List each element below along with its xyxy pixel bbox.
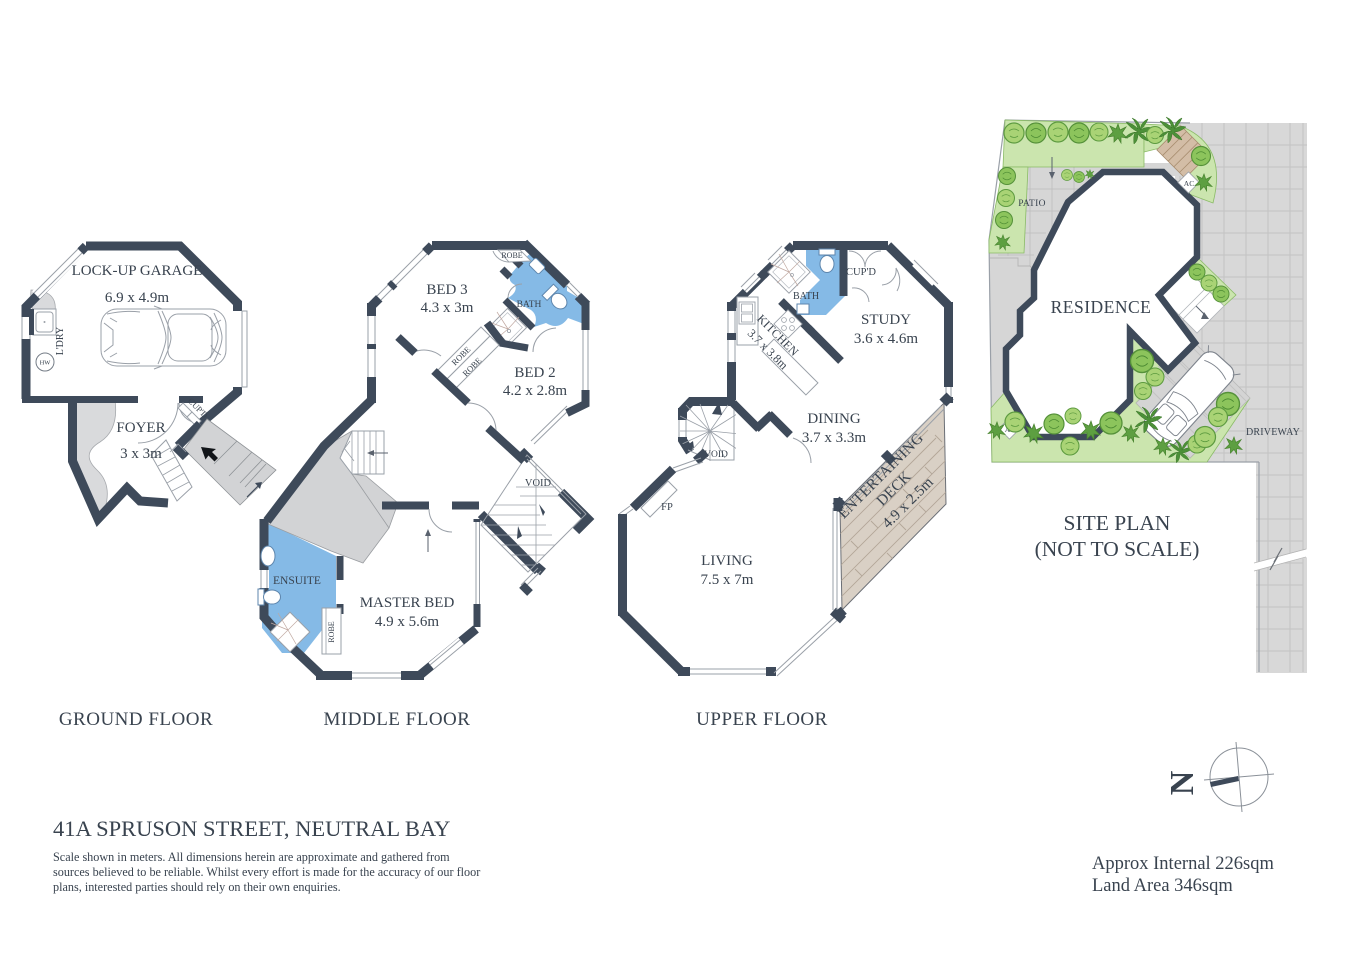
svg-text:BED 3: BED 3 — [426, 282, 467, 298]
svg-text:SITE PLAN: SITE PLAN — [1064, 511, 1171, 535]
svg-text:VOID: VOID — [525, 478, 552, 489]
svg-text:4.3 x 3m: 4.3 x 3m — [421, 300, 474, 316]
svg-text:FOYER: FOYER — [116, 420, 165, 436]
svg-text:ROBE: ROBE — [501, 251, 522, 260]
svg-text:GROUND FLOOR: GROUND FLOOR — [59, 709, 213, 730]
svg-text:N: N — [1164, 770, 1201, 795]
svg-text:FP: FP — [661, 502, 673, 513]
svg-text:(NOT TO SCALE): (NOT TO SCALE) — [1035, 537, 1200, 561]
svg-text:BATH: BATH — [517, 300, 542, 310]
svg-text:MIDDLE FLOOR: MIDDLE FLOOR — [324, 709, 471, 730]
svg-text:DINING: DINING — [807, 411, 860, 427]
svg-text:4.9 x 5.6m: 4.9 x 5.6m — [375, 614, 440, 630]
svg-text:3.7 x 3.3m: 3.7 x 3.3m — [802, 430, 867, 446]
svg-text:UPPER FLOOR: UPPER FLOOR — [696, 709, 828, 730]
svg-text:AC: AC — [1184, 179, 1194, 188]
svg-text:plans, interested parties shou: plans, interested parties should rely on… — [53, 880, 341, 894]
svg-text:RESIDENCE: RESIDENCE — [1051, 297, 1152, 317]
svg-text:6.9 x 4.9m: 6.9 x 4.9m — [105, 290, 170, 306]
svg-text:LIVING: LIVING — [701, 553, 753, 569]
svg-text:Scale shown in meters. All dim: Scale shown in meters. All dimensions he… — [53, 850, 450, 864]
svg-text:BATH: BATH — [793, 291, 819, 302]
svg-text:STUDY: STUDY — [861, 312, 911, 328]
svg-text:sources believed to be reliab: sources believed to be reliable. Whilst … — [53, 865, 480, 879]
svg-text:MASTER BED: MASTER BED — [360, 595, 455, 611]
svg-text:ROBE: ROBE — [327, 621, 336, 642]
svg-text:3 x 3m: 3 x 3m — [120, 446, 162, 462]
svg-text:DRIVEWAY: DRIVEWAY — [1246, 427, 1300, 438]
svg-text:Land Area 346sqm: Land Area 346sqm — [1092, 876, 1233, 896]
svg-text:ENSUITE: ENSUITE — [273, 575, 321, 587]
svg-text:BED 2: BED 2 — [514, 365, 555, 381]
svg-text:41A SPRUSON STREET, NEUTRAL BA: 41A SPRUSON STREET, NEUTRAL BAY — [53, 816, 450, 841]
svg-text:HW: HW — [40, 360, 52, 367]
svg-text:3.6 x 4.6m: 3.6 x 4.6m — [854, 331, 919, 347]
svg-text:LOCK-UP GARAGE: LOCK-UP GARAGE — [72, 263, 203, 279]
svg-text:L'DRY: L'DRY — [55, 327, 66, 355]
svg-text:7.5 x 7m: 7.5 x 7m — [701, 572, 754, 588]
svg-text:Approx Internal 226sqm: Approx Internal 226sqm — [1092, 854, 1274, 874]
svg-text:CUP'D: CUP'D — [846, 267, 876, 278]
svg-text:PATIO: PATIO — [1018, 199, 1046, 209]
svg-text:4.2 x 2.8m: 4.2 x 2.8m — [503, 383, 568, 399]
